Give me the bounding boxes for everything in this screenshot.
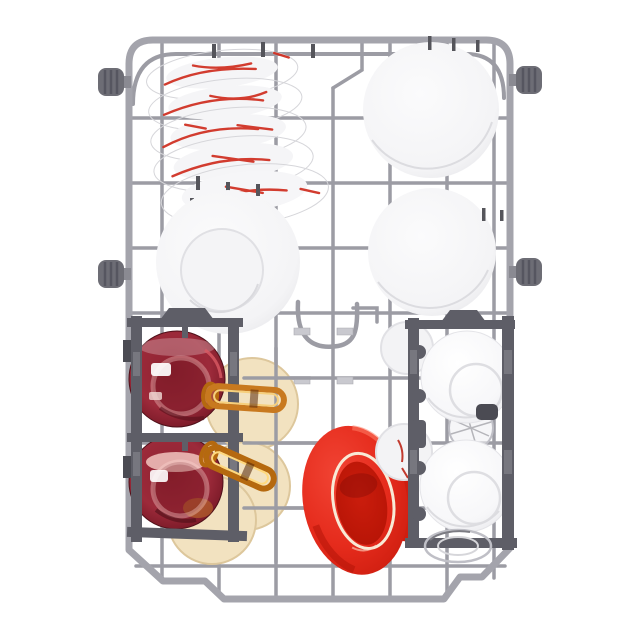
- rack-divider-stub: [182, 318, 188, 338]
- rack-scallop: [412, 507, 426, 521]
- white-cup-bottom: [420, 440, 512, 532]
- rack-scallop: [412, 389, 426, 403]
- specular-highlight: [150, 470, 168, 482]
- rack-clip: [476, 404, 498, 420]
- red-glass-cup-top: [129, 331, 225, 427]
- roller-right-top: [509, 66, 542, 94]
- fold-down-tine-u-wire: [298, 302, 357, 347]
- rack-bottom-bar: [405, 538, 517, 548]
- left-cup-rack: [123, 308, 326, 564]
- dinner-plate-top-right: [363, 42, 499, 178]
- white-cup-top: [421, 331, 513, 423]
- rack-clip-block: [411, 420, 426, 448]
- jog-wire-top: [333, 42, 362, 88]
- specular-highlight: [149, 392, 162, 400]
- dishwasher-basket-photo: Dishwasher lower basket loaded with dish…: [0, 0, 640, 640]
- bowl-middle-right: [368, 188, 496, 316]
- specular-highlight: [151, 363, 171, 376]
- roller-right-bottom: [509, 258, 542, 286]
- rim-sheen: [139, 338, 215, 356]
- rack-rail-left: [131, 316, 142, 542]
- rack-divider-stub: [182, 433, 188, 451]
- handle-shadow: [249, 389, 258, 408]
- product-photo-stage: Dishwasher lower basket loaded with dish…: [0, 0, 640, 640]
